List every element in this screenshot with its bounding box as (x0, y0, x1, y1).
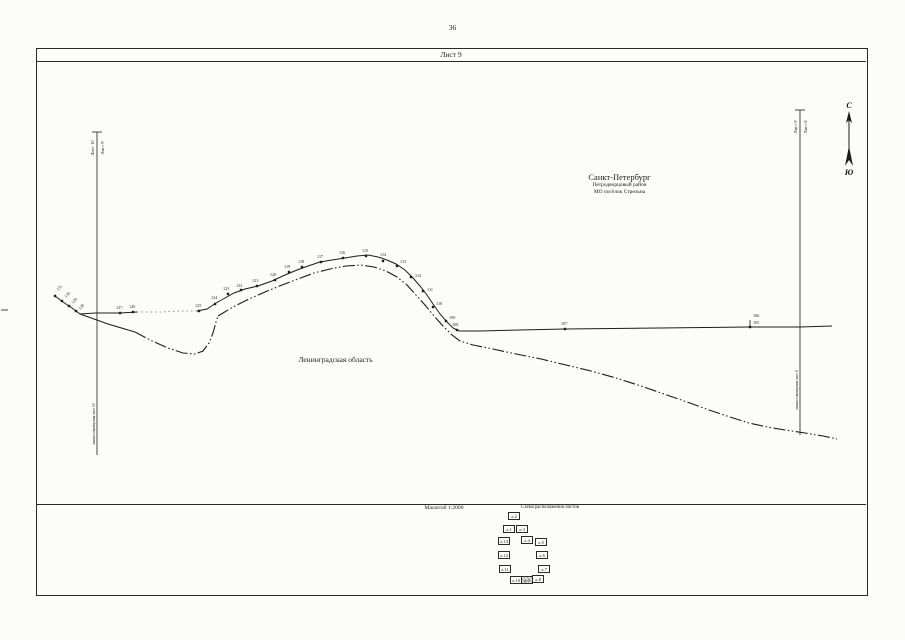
boundary-point-label: 123 (223, 286, 229, 291)
sheet-layout-scheme: Схема расположения листов л.2л.1л.3л.13л… (495, 504, 613, 596)
boundary-point-marker (301, 266, 303, 268)
scheme-sheet-л.2: л.2 (508, 512, 520, 520)
junction-left-sheet-label: Лист 9 (793, 120, 798, 134)
region-label-lenoblast: Ленинградская область (268, 355, 403, 364)
junction-left-sheet-label: Лист 10 (90, 140, 95, 156)
scheme-sheet-л.8: л.8 (532, 575, 544, 583)
boundary-point-label: 116 (339, 250, 345, 255)
scheme-sheet-л.1: л.1 (503, 525, 515, 533)
boundary-point-label: 114 (380, 252, 387, 257)
boundary-point-label: 118 (298, 259, 304, 264)
junction-right-sheet-label: Лист 8 (803, 120, 808, 134)
spb-name: Санкт-Петербург (552, 172, 687, 182)
spb-municipality: МО посёлок Стрельна (552, 189, 687, 196)
boundary-point-label: 119 (284, 264, 290, 269)
compass-south-label: Ю (844, 168, 854, 177)
boundary-point-label: 108 (452, 322, 458, 327)
scheme-sheet-л.12: л.12 (498, 551, 510, 559)
junction-right-sheet-label: Лист 9 (100, 141, 105, 155)
boundary-point-label: 117 (317, 254, 323, 259)
boundary-point-label: 111 (427, 287, 433, 292)
boundary-point-marker (422, 290, 424, 292)
oblast-boundary-dashdot-line (135, 316, 218, 354)
north-arrow-fletch-icon (845, 146, 853, 166)
boundary-point-marker (61, 300, 63, 302)
scheme-sheet-л.5: л.5 (535, 538, 547, 546)
boundary-point-marker (288, 271, 290, 273)
boundary-point-label: 109 (449, 315, 455, 320)
junction-line-caption: линия совмещения лист 8 (795, 370, 799, 410)
boundary-point-label: 127 (116, 305, 122, 310)
boundary-point-label: 105 (753, 320, 759, 325)
region-label-spb: Санкт-Петербург Петродворцовый район МО … (552, 172, 687, 196)
boundary-point-label: 128 (77, 303, 85, 311)
boundary-point-label: 122 (236, 283, 242, 288)
sheet-title-band: Лист 9 (36, 48, 866, 62)
boundary-point-marker (240, 289, 242, 291)
boundary-line (80, 314, 135, 332)
boundary-point-marker (274, 279, 276, 281)
boundary-point-label: 115 (362, 248, 368, 253)
boundary-point-label: 126 (129, 304, 135, 309)
boundary-point-label: 107 (561, 321, 567, 326)
boundary-point-marker (396, 265, 398, 267)
junction-line-caption: линия совмещения лист 10 (92, 403, 96, 444)
boundary-point-marker (320, 261, 322, 263)
compass-north-label: С (846, 101, 852, 110)
boundary-point-marker (119, 312, 121, 314)
boundary-point-label: 129 (70, 297, 78, 305)
oblast-boundary-dashdot-line (218, 265, 837, 439)
boundary-point-label: 130 (63, 291, 71, 299)
boundary-point-marker (564, 328, 566, 330)
page-number: 36 (0, 23, 905, 32)
boundary-point-label: 125 (195, 303, 201, 308)
scheme-sheet-л.6: л.6 (536, 551, 548, 559)
boundary-point-marker (54, 295, 56, 297)
scheme-sheet-л.7: л.7 (538, 565, 550, 573)
spb-district: Петродворцовый район (552, 182, 687, 189)
boundary-point-marker (432, 306, 434, 308)
scheme-sheet-л.4: л.4 (521, 536, 533, 544)
sheet-layout-scheme-title: Схема расположения листов (521, 505, 611, 510)
boundary-point-label: 112 (415, 273, 421, 278)
scheme-sheet-л.13: л.13 (498, 537, 510, 545)
boundary-point-label: 106 (753, 313, 759, 318)
boundary-point-marker (227, 293, 229, 295)
boundary-point-marker (75, 310, 77, 312)
boundary-point-marker (68, 305, 70, 307)
boundary-point-label: 131 (55, 284, 63, 292)
boundary-point-label: 113 (400, 259, 406, 264)
boundary-point-marker (342, 257, 344, 259)
boundary-line (137, 311, 197, 312)
sheet-title: Лист 9 (440, 50, 461, 59)
boundary-line (197, 255, 459, 331)
boundary-point-marker (214, 303, 216, 305)
boundary-point-label: 110 (436, 301, 442, 306)
scale-label: Масштаб 1:2000 (406, 505, 482, 511)
boundary-point-marker (132, 311, 134, 313)
boundary-point-marker (365, 255, 367, 257)
boundary-point-marker (382, 260, 384, 262)
scheme-sheet-л.3: л.3 (516, 525, 528, 533)
boundary-point-marker (198, 310, 200, 312)
boundary-line (459, 326, 832, 331)
boundary-point-marker (456, 329, 458, 331)
boundary-point-marker (410, 276, 412, 278)
boundary-point-label: 124 (211, 295, 218, 300)
boundary-line (55, 296, 137, 314)
boundary-point-label: 120 (270, 272, 276, 277)
boundary-point-marker (256, 285, 258, 287)
boundary-point-label: 121 (252, 278, 258, 283)
boundary-point-marker (445, 320, 447, 322)
boundary-map-canvas: 1061051071081091101111121131141151161171… (0, 0, 905, 640)
scheme-sheet-л.11: л.11 (499, 565, 511, 573)
boundary-point-marker (749, 326, 751, 328)
